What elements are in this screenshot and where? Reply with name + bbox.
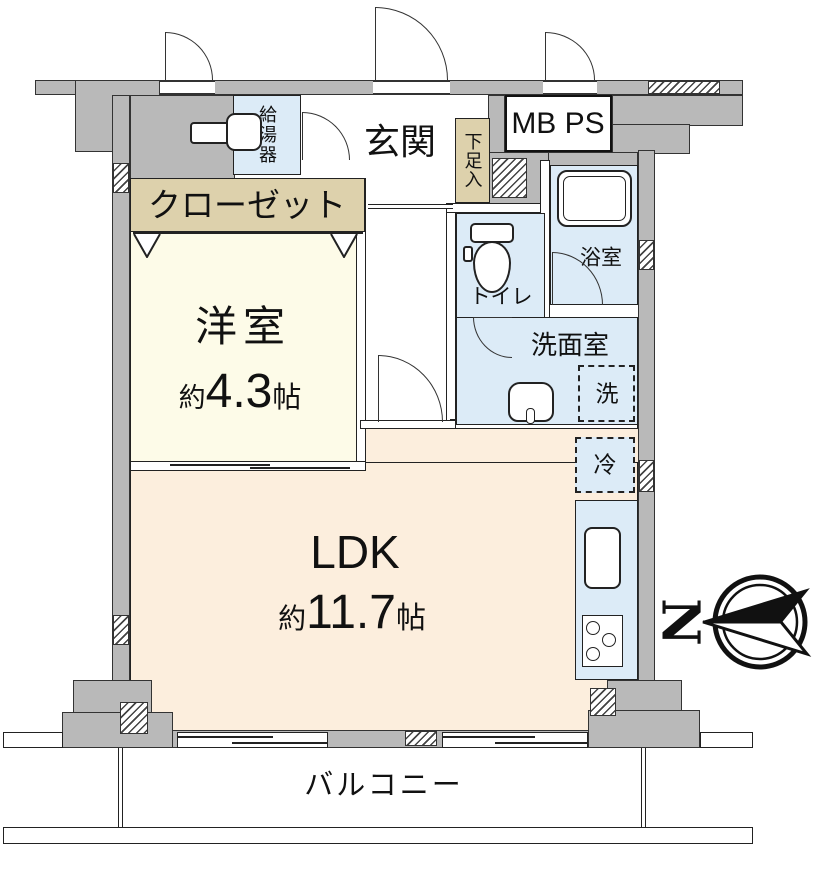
wall-hatch-left-upper	[113, 163, 129, 193]
opening-mbps-door	[543, 81, 597, 94]
pillar-bottom-left-lower	[62, 712, 173, 748]
western-room-size-number: 4.3	[206, 365, 273, 418]
wall-hatch-right-upper	[639, 240, 654, 270]
sliding-door-western-2	[250, 467, 350, 469]
toilet-tank-icon	[470, 223, 514, 243]
ldk-window-left	[177, 732, 328, 748]
sliding-door-western-1	[170, 464, 270, 466]
fridge-space-label: 冷	[594, 454, 617, 477]
wall-band-above-bath	[548, 152, 638, 166]
kitchen-sink-icon	[584, 527, 621, 589]
north-compass: N	[655, 568, 815, 676]
floor-plan: 給湯器 MB PS 下足入 クローゼット トイレ 浴室 洗面室 洗 冷	[0, 0, 817, 870]
wall-hatch-pillar-bl	[120, 702, 148, 734]
closet-front-line	[133, 232, 363, 234]
toilet-label: トイレ	[470, 287, 533, 308]
wall-block-top-right-1	[612, 95, 743, 126]
outer-wall-right	[638, 150, 655, 690]
western-room-size-unit: 帖	[272, 382, 301, 414]
opening-entrance-door	[373, 81, 450, 94]
ldk-size-unit: 帖	[396, 602, 426, 635]
western-room-size: 約4.3帖	[179, 368, 302, 416]
bathtub-inner-icon	[563, 176, 626, 221]
balcony-railing	[3, 827, 753, 844]
entrance-door-arc	[375, 7, 448, 80]
window-sash	[443, 736, 535, 738]
pillar-bottom-right-upper	[607, 680, 682, 712]
closet-label: クローゼット	[148, 189, 346, 222]
wall-hatch-pillar-br	[590, 688, 616, 716]
closet-door-mark-right	[330, 234, 358, 258]
balcony-side-wall-right	[700, 732, 753, 748]
balcony-label: バルコニー	[304, 772, 463, 801]
balcony-divider-right	[641, 748, 646, 827]
balcony-side-wall-left	[3, 732, 63, 748]
corridor-storage-door-arc	[165, 32, 213, 80]
window-sash	[232, 742, 327, 744]
wall-corridor-right	[446, 203, 456, 425]
wall-hatch-bottom	[405, 731, 437, 746]
western-room-name: 洋室	[195, 306, 291, 348]
entrance-inner-door-arc	[302, 112, 350, 160]
wall-toilet-top	[446, 203, 545, 213]
hall-to-ldk-door-arc	[378, 355, 443, 422]
window-sash	[495, 742, 587, 744]
opening-corridor-door	[160, 81, 215, 94]
entrance-step-line	[368, 204, 453, 209]
wall-hatch-right-lower	[639, 460, 654, 492]
washroom-label: 洗面室	[531, 332, 609, 358]
mbps-door-arc	[545, 32, 595, 80]
compass-letter: N	[655, 598, 711, 646]
toilet-lever-icon	[463, 246, 473, 262]
wall-hatch-left-lower	[113, 615, 129, 645]
balcony-divider-left	[118, 748, 123, 827]
wall-hatch-top-right	[648, 81, 720, 94]
window-sash	[178, 736, 273, 738]
ldk-size-approx: 約	[278, 603, 306, 634]
shoe-cabinet-label: 下足入	[460, 132, 486, 189]
mbps-label: MB PS	[511, 109, 604, 139]
ldk-name: LDK	[310, 529, 399, 575]
wall-hatch-above-toilet	[492, 158, 527, 198]
washer-space-label: 洗	[596, 383, 619, 406]
water-heater-pipe-icon	[226, 113, 262, 151]
stove-burner-1-icon	[586, 621, 600, 635]
washbasin-drain-icon	[526, 408, 535, 424]
western-room-size-approx: 約	[179, 383, 206, 413]
entrance-label: 玄関	[364, 124, 436, 160]
stove-burner-2-icon	[602, 633, 616, 647]
shoe-cabinet-box: 下足入	[455, 118, 490, 203]
ldk-size-number: 11.7	[306, 586, 396, 639]
stove-burner-3-icon	[586, 647, 600, 661]
closet-door-mark-left	[133, 234, 161, 258]
ldk-window-right	[442, 732, 588, 748]
ldk-size: 約11.7帖	[278, 589, 426, 637]
